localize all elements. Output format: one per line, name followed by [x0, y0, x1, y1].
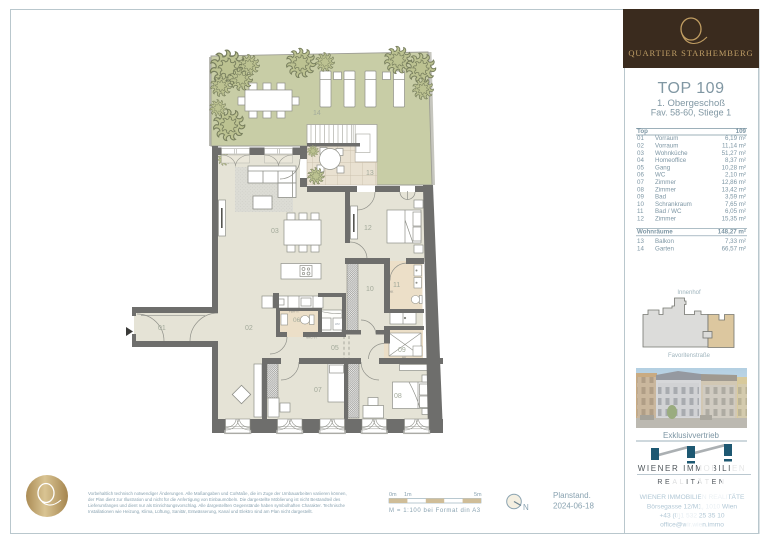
svg-text:10: 10 — [366, 286, 374, 293]
svg-text:14: 14 — [637, 246, 644, 253]
svg-text:Börsegasse 12/M1, 1010 Wien: Börsegasse 12/M1, 1010 Wien — [647, 504, 737, 511]
svg-text:05: 05 — [331, 345, 339, 352]
svg-text:66,57 m²: 66,57 m² — [722, 246, 746, 253]
svg-text:Homeoffice: Homeoffice — [655, 157, 687, 164]
svg-text:WIENER IMMOBILIEN: WIENER IMMOBILIEN — [638, 464, 747, 473]
svg-text:08: 08 — [637, 186, 644, 193]
svg-text:3,59 m²: 3,59 m² — [725, 194, 746, 201]
svg-text:Lieferumfanges und dient nur a: Lieferumfanges und dient nur als Einrich… — [88, 503, 345, 508]
svg-text:Wohnküche: Wohnküche — [655, 150, 688, 157]
svg-text:TOP 109: TOP 109 — [658, 80, 725, 97]
svg-text:Bad: Bad — [655, 194, 667, 201]
svg-text:Zimmer: Zimmer — [655, 179, 676, 186]
svg-text:06: 06 — [637, 172, 644, 179]
svg-text:0m: 0m — [389, 492, 397, 498]
svg-text:01: 01 — [637, 135, 644, 142]
svg-text:02: 02 — [637, 143, 644, 150]
svg-text:Garten: Garten — [655, 246, 674, 253]
svg-text:Wohnräume: Wohnräume — [637, 229, 673, 236]
svg-text:11: 11 — [637, 208, 644, 215]
svg-text:13: 13 — [366, 170, 374, 177]
svg-text:05: 05 — [637, 164, 644, 171]
svg-text:11,14 m²: 11,14 m² — [722, 143, 746, 150]
svg-text:WM: WM — [335, 322, 340, 326]
svg-text:10,28 m²: 10,28 m² — [722, 164, 746, 171]
svg-text:15,35 m²: 15,35 m² — [722, 216, 746, 223]
svg-text:2,10 m²: 2,10 m² — [725, 172, 746, 179]
svg-text:WC: WC — [655, 172, 666, 179]
svg-text:12: 12 — [637, 216, 644, 223]
svg-text:10: 10 — [637, 201, 644, 208]
svg-text:Exklusivvertrieb: Exklusivvertrieb — [663, 431, 720, 440]
svg-text:13: 13 — [637, 238, 644, 245]
svg-text:Balkon: Balkon — [655, 238, 674, 245]
svg-text:7,65 m²: 7,65 m² — [725, 201, 746, 208]
svg-text:7,33 m²: 7,33 m² — [725, 238, 746, 245]
svg-text:Schrankraum: Schrankraum — [655, 201, 692, 208]
svg-text:02: 02 — [245, 325, 253, 332]
svg-text:51,27 m²: 51,27 m² — [722, 150, 746, 157]
svg-text:11: 11 — [393, 282, 400, 289]
svg-text:Vorraum: Vorraum — [655, 135, 678, 142]
svg-text:Favoritenstraße: Favoritenstraße — [668, 353, 711, 359]
svg-text:06: 06 — [293, 317, 301, 324]
svg-text:6,05 m²: 6,05 m² — [725, 208, 746, 215]
svg-text:13,42 m²: 13,42 m² — [722, 186, 746, 193]
svg-text:5m: 5m — [474, 492, 482, 498]
svg-text:04: 04 — [637, 157, 644, 164]
svg-text:08: 08 — [394, 393, 402, 400]
svg-text:01: 01 — [158, 325, 166, 332]
svg-text:REALITÄTEN: REALITÄTEN — [657, 478, 726, 486]
svg-text:Zimmer: Zimmer — [655, 186, 676, 193]
svg-text:WIENER IMMOBILIEN REALITÄTE: WIENER IMMOBILIEN REALITÄTE — [640, 493, 745, 501]
svg-text:M = 1:100 bei Format din A3: M = 1:100 bei Format din A3 — [389, 508, 481, 514]
svg-text:109: 109 — [736, 128, 747, 135]
svg-text:Gang: Gang — [655, 164, 671, 171]
svg-text:6,19 m²: 6,19 m² — [725, 135, 746, 142]
svg-text:07: 07 — [314, 387, 322, 394]
svg-text:Innenhof: Innenhof — [677, 290, 701, 296]
svg-text:N: N — [523, 503, 529, 512]
svg-text:03: 03 — [271, 228, 279, 235]
svg-text:148,27 m²: 148,27 m² — [718, 229, 746, 236]
svg-text:12,86 m²: 12,86 m² — [722, 179, 746, 186]
svg-text:09: 09 — [637, 194, 644, 201]
svg-text:09: 09 — [398, 347, 406, 354]
svg-text:1m: 1m — [404, 492, 412, 498]
svg-text:Fav. 58-60, Stiege 1: Fav. 58-60, Stiege 1 — [651, 108, 731, 118]
svg-text:8,37 m²: 8,37 m² — [725, 157, 746, 164]
svg-text:Vorraum: Vorraum — [655, 143, 678, 150]
svg-text:Top: Top — [637, 128, 648, 135]
svg-text:Bad / WC: Bad / WC — [655, 208, 682, 215]
svg-text:03: 03 — [637, 150, 644, 157]
svg-text:2024-06-18: 2024-06-18 — [553, 502, 594, 511]
svg-text:Installationen wie Heizung, Kl: Installationen wie Heizung, Klima, Lüftu… — [88, 509, 313, 514]
svg-text:QUARTIER STARHEMBERG: QUARTIER STARHEMBERG — [628, 48, 753, 58]
svg-text:Planstand.: Planstand. — [553, 491, 591, 500]
svg-text:der Plan dient zur Illustratio: der Plan dient zur Illustration und nich… — [88, 497, 341, 502]
svg-text:14: 14 — [313, 110, 321, 117]
svg-text:12: 12 — [364, 225, 372, 232]
svg-text:07: 07 — [637, 179, 644, 186]
svg-text:Vorbehaltlich technisch notwen: Vorbehaltlich technisch notwendiger Ände… — [88, 491, 347, 496]
svg-text:Zimmer: Zimmer — [655, 216, 676, 223]
